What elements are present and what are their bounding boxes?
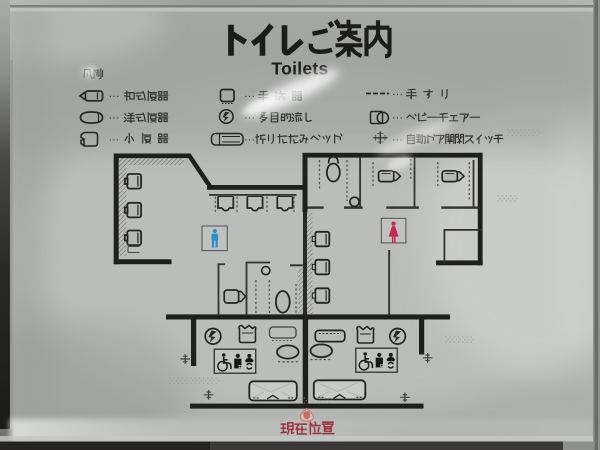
- svg-text:···: ···: [109, 134, 120, 146]
- svg-text:···: ···: [109, 112, 120, 124]
- svg-text:···: ···: [244, 91, 255, 103]
- svg-text:···: ···: [392, 112, 403, 124]
- svg-text:···: ···: [109, 91, 120, 103]
- svg-text:···: ···: [244, 134, 255, 146]
- svg-text:···: ···: [392, 89, 403, 101]
